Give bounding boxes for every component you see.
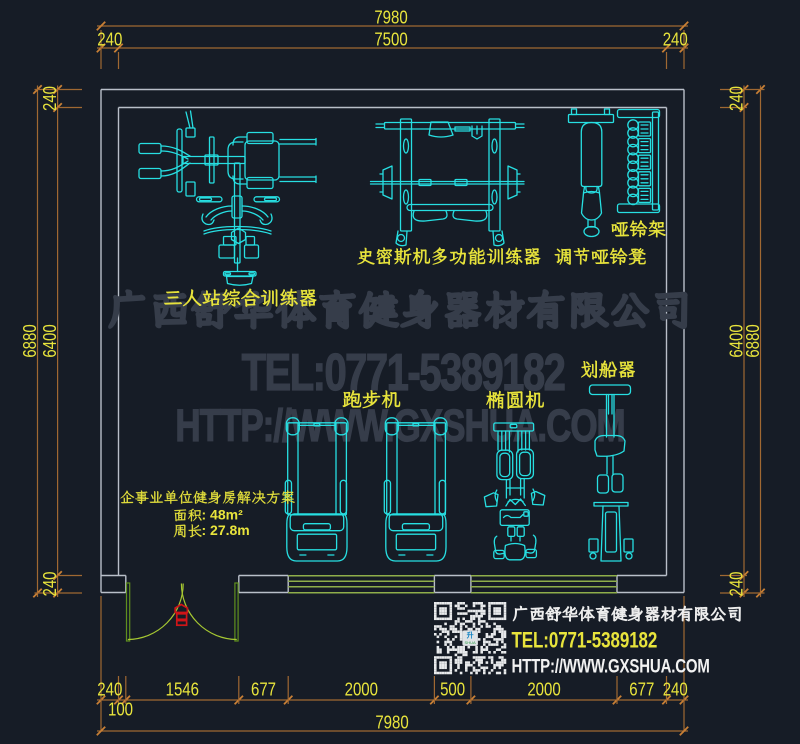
svg-text:升: 升 <box>467 631 474 640</box>
svg-text:6880: 6880 <box>20 324 41 357</box>
svg-text:100: 100 <box>108 699 133 720</box>
svg-text:7500: 7500 <box>374 29 407 50</box>
svg-text:240: 240 <box>663 679 688 700</box>
svg-text:: 27.8m: : 27.8m <box>202 522 250 538</box>
svg-text:240: 240 <box>663 29 688 50</box>
svg-text:2000: 2000 <box>345 679 378 700</box>
svg-text:677: 677 <box>251 679 276 700</box>
svg-text:7980: 7980 <box>374 7 407 28</box>
svg-text:7980: 7980 <box>375 712 408 733</box>
svg-text:240: 240 <box>40 571 61 596</box>
svg-text:: 48m²: : 48m² <box>202 507 244 523</box>
svg-text:240: 240 <box>97 679 122 700</box>
svg-text:6400: 6400 <box>40 324 61 357</box>
svg-text:TEL:0771-5389182: TEL:0771-5389182 <box>512 628 658 653</box>
svg-text:HTTP://WWW.GXSHUA.COM: HTTP://WWW.GXSHUA.COM <box>512 655 710 677</box>
svg-text:SHUA: SHUA <box>465 640 476 645</box>
svg-text:1546: 1546 <box>166 679 199 700</box>
svg-text:240: 240 <box>97 29 122 50</box>
svg-text:677: 677 <box>629 679 654 700</box>
svg-text:240: 240 <box>40 86 61 111</box>
svg-text:2000: 2000 <box>527 679 560 700</box>
svg-text:240: 240 <box>726 571 747 596</box>
svg-text:500: 500 <box>440 679 465 700</box>
svg-text:6880: 6880 <box>743 324 764 357</box>
svg-text:240: 240 <box>726 86 747 111</box>
